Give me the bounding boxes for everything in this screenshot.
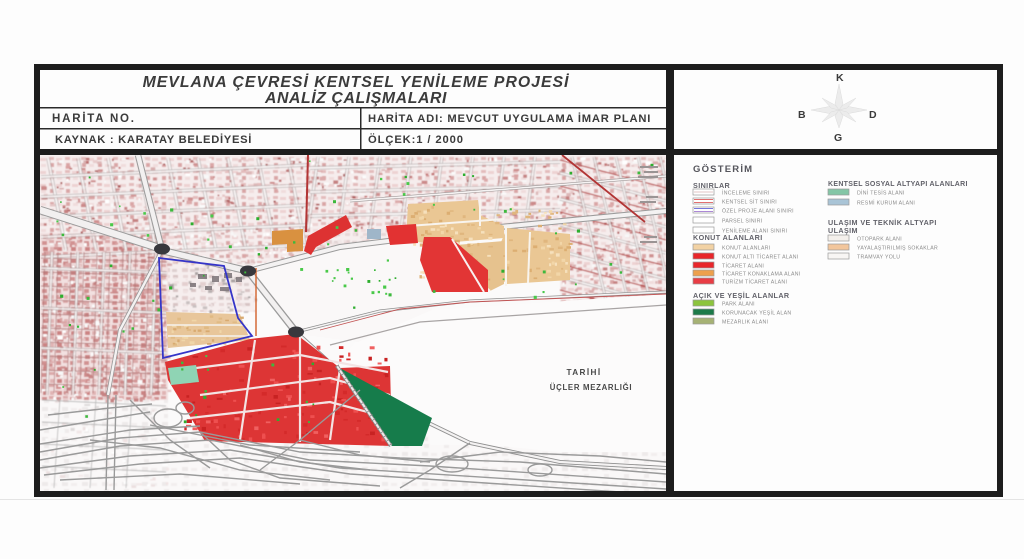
svg-text:ANALİZ ÇALIŞMALARI: ANALİZ ÇALIŞMALARI [264,89,447,107]
svg-text:SINIRLAR: SINIRLAR [693,181,731,190]
svg-text:KORUNACAK YEŞİL ALAN: KORUNACAK YEŞİL ALAN [722,310,791,317]
svg-text:D: D [869,109,877,121]
svg-text:B: B [798,109,806,121]
svg-text:TURİZM TİCARET ALANI: TURİZM TİCARET ALANI [722,279,787,286]
svg-text:PARSEL SINIRI: PARSEL SINIRI [722,219,763,225]
svg-text:TARİHİ: TARİHİ [566,367,601,377]
svg-text:KONUT ALTI TİCARET ALANI: KONUT ALTI TİCARET ALANI [722,254,799,261]
svg-text:AÇIK VE YEŞİL ALANLAR: AÇIK VE YEŞİL ALANLAR [693,291,790,300]
svg-text:MEZARLIK ALANI: MEZARLIK ALANI [722,320,768,326]
svg-text:ÖZEL PROJE ALANI SINIRI: ÖZEL PROJE ALANI SINIRI [722,208,794,215]
svg-text:GÖSTERİM: GÖSTERİM [693,164,753,175]
svg-text:ULAŞIM: ULAŞIM [828,226,858,235]
svg-text:TİCARET KONAKLAMA ALANI: TİCARET KONAKLAMA ALANI [722,271,801,278]
svg-text:DİNİ TESİS ALANI: DİNİ TESİS ALANI [857,190,905,197]
svg-text:OTOPARK ALANI: OTOPARK ALANI [857,237,902,243]
svg-text:KONUT ALANLARI: KONUT ALANLARI [722,246,771,252]
svg-text:İNCELEME SINIRI: İNCELEME SINIRI [722,190,770,197]
svg-text:K: K [836,72,844,84]
svg-text:G: G [834,132,842,144]
svg-text:PARK ALANI: PARK ALANI [722,302,755,308]
svg-text:HARİTA ADI: MEVCUT UYGULAMA İM: HARİTA ADI: MEVCUT UYGULAMA İMAR PLANI [368,112,651,125]
svg-text:YAYALAŞTIRILMIŞ SOKAKLAR: YAYALAŞTIRILMIŞ SOKAKLAR [857,246,938,252]
svg-text:ÖLÇEK:1 / 2000: ÖLÇEK:1 / 2000 [368,133,464,146]
svg-text:MEVLANA ÇEVRESİ KENTSEL YENİLE: MEVLANA ÇEVRESİ KENTSEL YENİLEME PROJESİ [143,73,570,91]
svg-text:TİCARET ALANI: TİCARET ALANI [722,263,764,270]
svg-text:TRAMVAY YOLU: TRAMVAY YOLU [857,255,900,261]
svg-text:RESMİ KURUM ALANI: RESMİ KURUM ALANI [857,200,915,207]
svg-text:KAYNAK : KARATAY BELEDİYESİ: KAYNAK : KARATAY BELEDİYESİ [55,133,252,146]
svg-text:KENTSEL SİT SINIRI: KENTSEL SİT SINIRI [722,199,777,206]
svg-text:HARİTA NO.: HARİTA NO. [52,112,136,125]
svg-text:KONUT ALANLARI: KONUT ALANLARI [693,233,763,242]
svg-text:ÜÇLER MEZARLIĞI: ÜÇLER MEZARLIĞI [550,383,632,392]
svg-text:KENTSEL SOSYAL ALTYAPI ALANLAR: KENTSEL SOSYAL ALTYAPI ALANLARI [828,181,968,188]
